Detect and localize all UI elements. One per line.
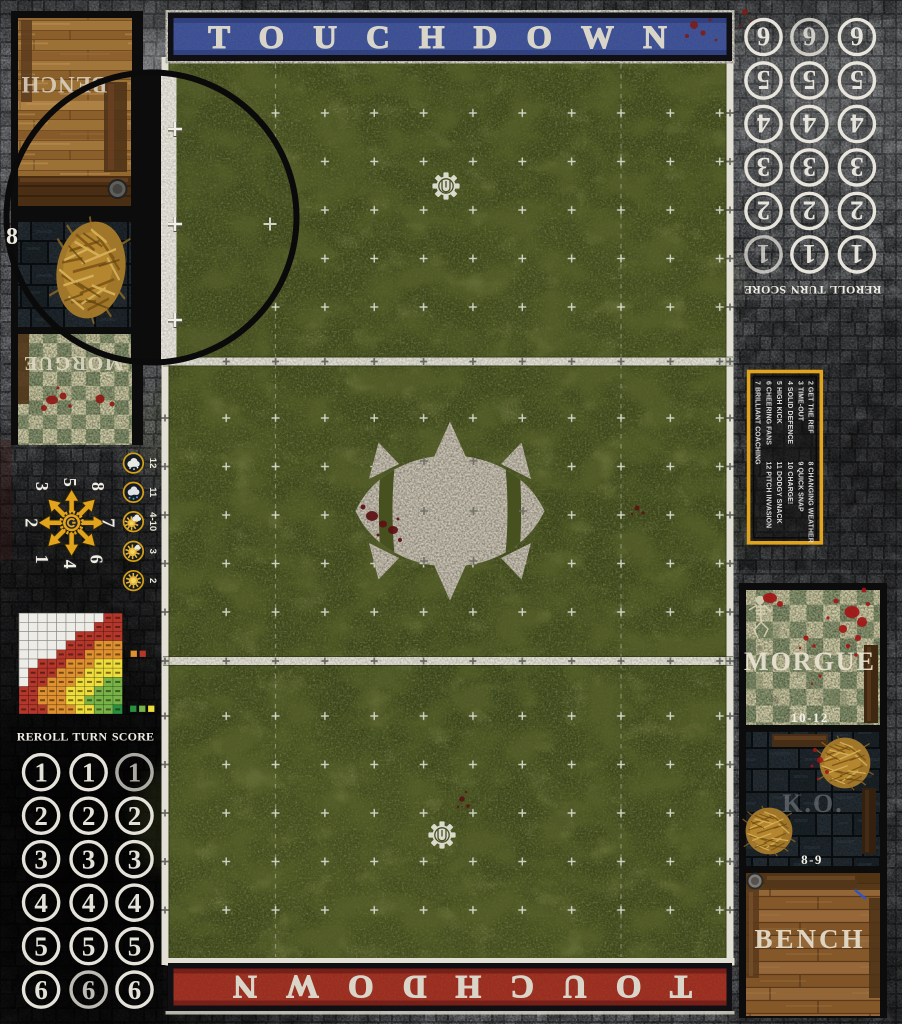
svg-text:5 HIGH KICK: 5 HIGH KICK [775,381,782,424]
svg-text:5: 5 [82,932,96,962]
svg-text:3: 3 [128,845,142,875]
svg-text:3 TIME-OUT: 3 TIME-OUT [797,381,804,422]
svg-text:4 SOLID DEFENCE: 4 SOLID DEFENCE [786,381,793,444]
svg-text:12 PITCH INVASION: 12 PITCH INVASION [764,462,771,529]
svg-text:2: 2 [34,801,48,831]
svg-text:10-12: 10-12 [791,710,829,725]
svg-text:4: 4 [82,888,96,918]
svg-text:2: 2 [21,518,41,527]
svg-text:4-10: 4-10 [147,512,158,531]
svg-text:4: 4 [128,888,142,918]
svg-text:TOUCHDOWN: TOUCHDOWN [208,20,696,56]
svg-text:6: 6 [34,975,48,1005]
svg-text:1: 1 [82,758,96,788]
svg-text:8: 8 [6,224,18,250]
svg-text:6 CHEERING FANS: 6 CHEERING FANS [764,381,771,445]
svg-text:5: 5 [34,932,48,962]
svg-text:5: 5 [60,478,80,487]
svg-text:3: 3 [82,845,96,875]
svg-text:6: 6 [86,555,106,564]
svg-text:1: 1 [32,555,52,564]
svg-text:2: 2 [128,801,142,831]
svg-text:7 BRILLIANT COACHING: 7 BRILLIANT COACHING [754,381,761,465]
svg-text:3: 3 [34,845,48,875]
svg-text:4: 4 [34,888,48,918]
svg-text:6: 6 [128,975,142,1005]
svg-text:8 CHANGING WEATHER: 8 CHANGING WEATHER [806,462,813,543]
svg-text:9 QUICK SNAP: 9 QUICK SNAP [797,462,804,513]
svg-text:12: 12 [147,458,158,469]
svg-text:3: 3 [147,549,158,554]
svg-text:8-9: 8-9 [801,852,823,867]
svg-text:8: 8 [88,482,108,491]
svg-text:REROLL TURN SCORE: REROLL TURN SCORE [17,730,155,744]
svg-text:TOUCHDOWN: TOUCHDOWN [204,968,692,1004]
svg-text:4: 4 [60,560,80,569]
svg-text:1: 1 [34,758,48,788]
svg-text:2 GET THE REF: 2 GET THE REF [806,381,813,434]
svg-text:2: 2 [82,801,96,831]
svg-text:6: 6 [82,975,96,1005]
svg-text:10 CHARGE!: 10 CHARGE! [786,462,793,505]
svg-text:5: 5 [128,932,142,962]
svg-text:1: 1 [128,758,142,788]
svg-text:7: 7 [99,518,119,527]
svg-text:11 DODGY SNACK: 11 DODGY SNACK [775,462,782,524]
svg-text:BENCH: BENCH [754,924,865,954]
svg-text:3: 3 [32,482,52,491]
svg-text:11: 11 [147,487,158,498]
svg-text:2: 2 [147,578,158,583]
svg-text:MORGUE: MORGUE [744,647,876,676]
